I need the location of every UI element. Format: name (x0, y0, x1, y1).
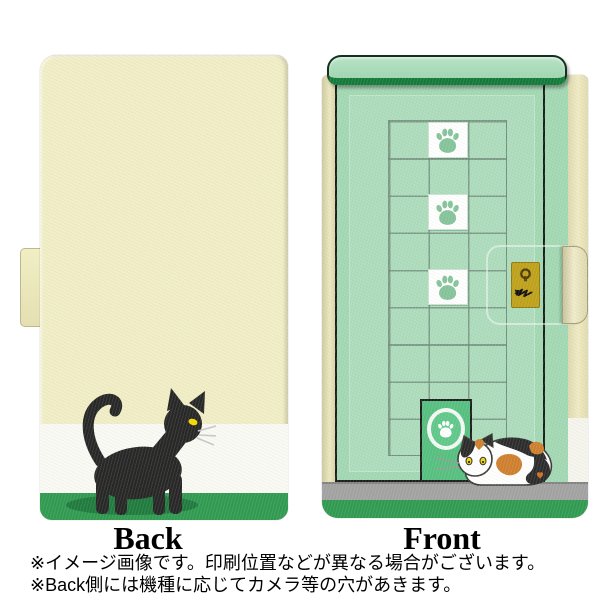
lock-plate (511, 262, 540, 308)
note-line-1: ※イメージ画像です。印刷位置などが異なる場合がございます。 (30, 553, 545, 575)
note-line-2: ※Back側には機種に応じてカメラ等の穴があきます。 (30, 575, 545, 597)
disclaimer-notes: ※イメージ画像です。印刷位置などが異なる場合がございます。 ※Back側には機種… (30, 553, 545, 596)
paw-print-icon (432, 273, 464, 302)
front-green-stripe (322, 500, 588, 518)
paw-print-tile (428, 269, 468, 305)
door-lintel (327, 55, 567, 85)
paw-print-tile (428, 194, 468, 230)
case-front-cover (322, 55, 588, 518)
paw-print-icon (432, 126, 464, 155)
front-door-artwork (322, 75, 588, 518)
product-image: Back Front ※イメージ画像です。印刷位置などが異なる場合がございます。… (0, 0, 600, 600)
black-cat-illustration (56, 377, 216, 517)
calico-cat-illustration (431, 432, 555, 488)
front-left-spine (322, 75, 335, 482)
scratch-marks-icon (515, 290, 532, 297)
cat-whiskers (435, 458, 459, 469)
front-right-white-strip (568, 418, 588, 482)
paw-print-icon (432, 198, 464, 227)
back-label: Back (73, 520, 223, 557)
keyhole-icon (512, 263, 539, 307)
case-back-cover (40, 55, 288, 520)
clasp-strap (562, 246, 588, 324)
front-label: Front (367, 520, 517, 557)
paw-print-tile (428, 122, 468, 158)
